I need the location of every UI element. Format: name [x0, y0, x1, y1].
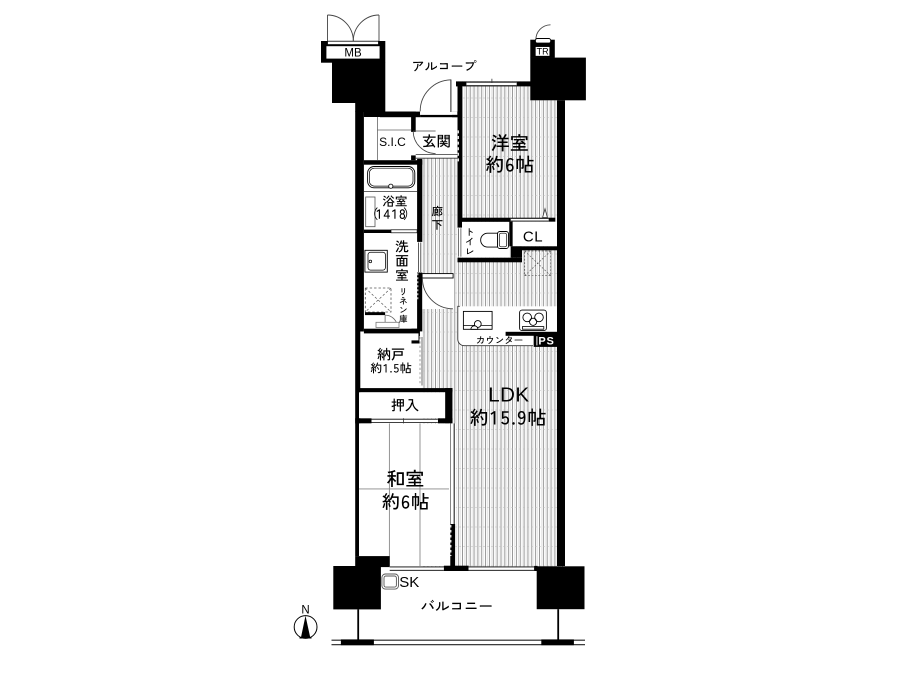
svg-text:MB: MB [344, 48, 362, 60]
svg-text:LDK: LDK [488, 383, 529, 406]
svg-text:TR: TR [537, 47, 549, 57]
svg-text:PS: PS [538, 336, 554, 348]
svg-text:SK: SK [399, 574, 419, 591]
svg-text:N: N [301, 605, 309, 617]
svg-text:CL: CL [523, 228, 543, 245]
svg-text:S.I.C: S.I.C [379, 135, 406, 149]
